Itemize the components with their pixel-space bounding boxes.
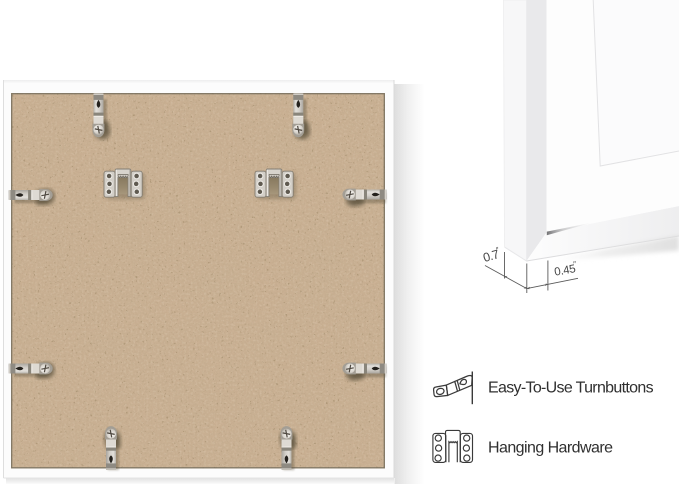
svg-text:Hanging Hardware: Hanging Hardware xyxy=(488,439,613,456)
svg-text:″: ″ xyxy=(573,259,578,268)
svg-text:Easy-To-Use Turnbuttons: Easy-To-Use Turnbuttons xyxy=(488,379,654,396)
